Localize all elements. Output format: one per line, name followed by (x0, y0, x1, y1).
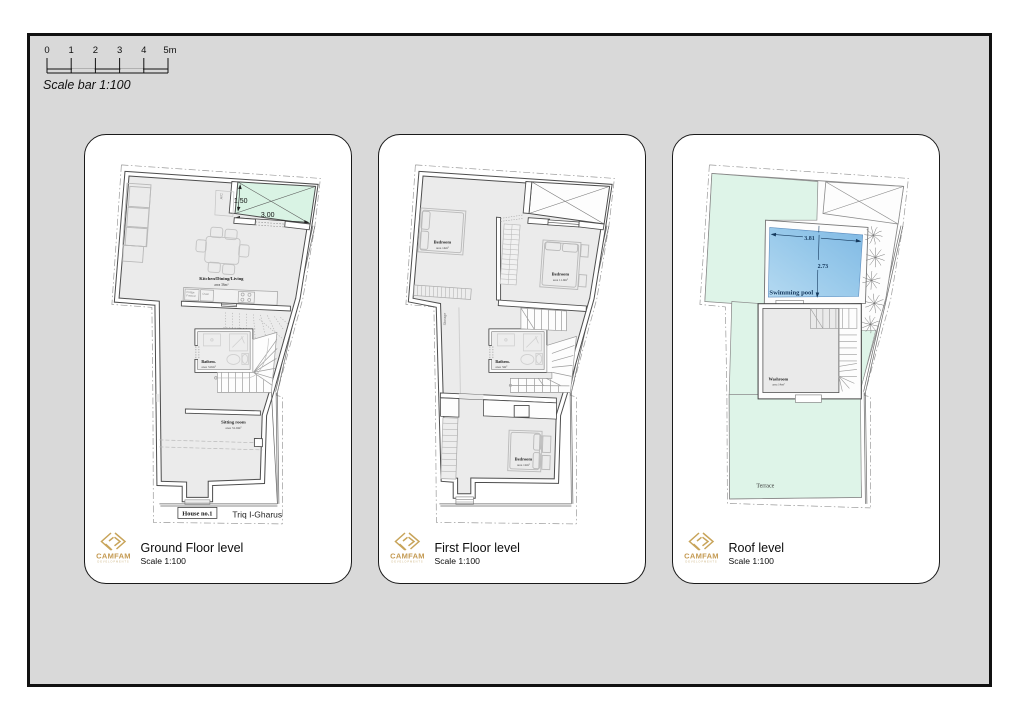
svg-text:0: 0 (44, 45, 49, 56)
svg-text:DEVELOPMENTS: DEVELOPMENTS (391, 559, 423, 563)
svg-text:DEVELOPMENTS: DEVELOPMENTS (97, 559, 129, 563)
svg-text:A/C: A/C (219, 193, 223, 200)
svg-text:Triq I-Gharus: Triq I-Gharus (232, 509, 282, 519)
svg-text:3.81: 3.81 (804, 236, 815, 242)
svg-text:1: 1 (69, 45, 74, 56)
svg-text:Bedroom: Bedroom (434, 239, 452, 244)
svg-text:CAMFAM: CAMFAM (684, 552, 719, 561)
svg-text:Sitting room: Sitting room (221, 419, 246, 424)
svg-text:2.73: 2.73 (818, 264, 829, 270)
svg-text:1.50: 1.50 (234, 198, 248, 205)
svg-text:Bedroom: Bedroom (515, 456, 533, 461)
svg-text:area 14m²: area 14m² (772, 382, 784, 386)
svg-text:area 14m²: area 14m² (436, 246, 449, 250)
svg-text:CAMFAM: CAMFAM (390, 552, 425, 561)
svg-text:area 3.0m²: area 3.0m² (201, 365, 215, 369)
svg-text:area 11.9m²: area 11.9m² (553, 278, 568, 282)
svg-text:Swimming pool: Swimming pool (769, 289, 813, 296)
svg-text:CAMFAM: CAMFAM (96, 552, 131, 561)
svg-text:Terrace: Terrace (756, 483, 774, 489)
svg-text:3.00: 3.00 (261, 212, 275, 219)
svg-text:area 12m²: area 12m² (517, 463, 530, 467)
svg-text:3: 3 (117, 45, 122, 56)
svg-text:Bathrm.: Bathrm. (201, 359, 215, 364)
svg-text:DEVELOPMENTS: DEVELOPMENTS (685, 559, 717, 563)
svg-text:Washroom: Washroom (769, 376, 789, 381)
svg-text:4: 4 (141, 45, 146, 56)
svg-text:Kitchen/Dining/Living: Kitchen/Dining/Living (199, 276, 244, 281)
svg-text:area 3m²: area 3m² (495, 365, 507, 369)
svg-text:area 31.6m²: area 31.6m² (225, 426, 241, 430)
svg-text:Storage: Storage (443, 313, 447, 326)
svg-text:Bathrm.: Bathrm. (495, 359, 509, 364)
svg-text:Oven: Oven (202, 292, 209, 296)
svg-text:2: 2 (93, 45, 98, 56)
svg-text:House no.1: House no.1 (182, 510, 212, 517)
svg-text:5m: 5m (163, 45, 176, 56)
svg-text:Bedroom: Bedroom (552, 271, 570, 276)
svg-text:Freezer: Freezer (186, 294, 196, 298)
svg-text:area 36m²: area 36m² (214, 283, 228, 287)
